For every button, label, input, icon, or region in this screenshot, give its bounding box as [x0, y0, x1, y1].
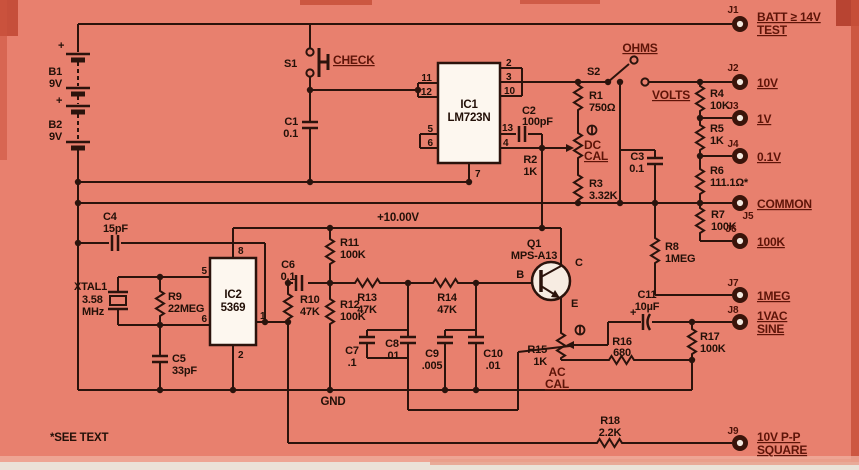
j3-label: 1V [757, 112, 771, 126]
circuit-schematic: B1 9V B2 9V + + S1 CHECK C1 0.1 IC1 LM72… [0, 0, 859, 470]
r9-ref-label: R9 [168, 291, 182, 303]
r17-ref-label: R17 [700, 331, 720, 343]
r15-wiper-arrow [566, 341, 574, 349]
r14-ref-label: R14 [437, 292, 458, 304]
r13-ref-label: R13 [357, 292, 377, 304]
r1-value-label: 750Ω [589, 102, 616, 114]
r5-ref-label: R5 [710, 123, 724, 135]
j8-label-line1: 1VAC [757, 309, 788, 323]
b1-plus-sign: + [58, 40, 64, 52]
s2-ohms-label: OHMS [622, 41, 657, 55]
c3-ref-label: C3 [630, 151, 644, 163]
wires [78, 24, 732, 443]
battery-symbols [66, 54, 90, 148]
s1-pushbutton-switch [306, 48, 328, 77]
c3-value-label: 0.1 [629, 163, 644, 175]
ac-cal-screw-icon [576, 326, 585, 335]
j1-ref-label: J1 [727, 5, 739, 16]
r18-ref-label: R18 [600, 415, 620, 427]
c10-value-label: .01 [486, 360, 501, 372]
r8-ref-label: R8 [665, 241, 679, 253]
j1-label-line2: TEST [757, 23, 788, 37]
ac-cal-line2-label: CAL [545, 377, 569, 391]
q1-ref-label: Q1 [527, 238, 541, 250]
r17-value-label: 100K [700, 343, 726, 355]
j5-label: COMMON [757, 197, 812, 211]
r9-value-label: 22MEG [168, 303, 204, 315]
s2-selector-switch [630, 56, 648, 85]
r10-ref-label: R10 [300, 294, 320, 306]
r15-value-label: 1K [533, 356, 547, 368]
c1-ref-label: C1 [284, 116, 298, 128]
j8-label-line2: SINE [757, 322, 784, 336]
c8-ref-label: C8 [385, 338, 399, 350]
j8-jack [732, 314, 748, 330]
ic2-pin8-label: 8 [238, 246, 244, 257]
r18-value-label: 2.2K [599, 427, 622, 439]
j3-ref-label: J3 [727, 101, 739, 112]
c2-value-label: 100pF [522, 116, 553, 128]
r4-ref-label: R4 [710, 88, 725, 100]
c6-ref-label: C6 [281, 259, 295, 271]
ic2-pin5-label: 5 [201, 266, 207, 277]
dc-cal-screw-icon [588, 126, 597, 135]
ic1-pin10-label: 10 [504, 86, 516, 97]
j3-jack [732, 110, 748, 126]
j2-ref-label: J2 [727, 63, 739, 74]
ic2-pin6-label: 6 [201, 314, 207, 325]
c8-value-label: .01 [385, 350, 400, 362]
schematic-page: B1 9V B2 9V + + S1 CHECK C1 0.1 IC1 LM72… [0, 0, 859, 470]
j1-jack [732, 16, 748, 32]
ic1-pin7-label: 7 [475, 169, 481, 180]
r10-value-label: 47K [300, 306, 320, 318]
r5-value-label: 1K [710, 135, 724, 147]
r3-ref-label: R3 [589, 178, 603, 190]
c4-value-label: 15pF [103, 223, 128, 235]
gnd-label: GND [321, 396, 346, 408]
ic2-ref-label: IC2 [224, 289, 241, 301]
crystal-symbol [108, 292, 128, 309]
ic2-part-label: 5369 [221, 302, 246, 314]
j1-label-line1: BATT ≥ 14V [757, 10, 821, 24]
j6-jack [732, 233, 748, 249]
ic2-pin2-label: 2 [238, 350, 244, 361]
r13-value-label: 47K [357, 304, 377, 316]
q1-collector-label: C [575, 257, 583, 269]
ic2-pin1-label: 1 [260, 311, 266, 322]
j5-ref-label: J5 [742, 211, 754, 222]
c9-ref-label: C9 [425, 348, 439, 360]
ic1-pin13-label: 13 [502, 123, 514, 134]
ic1-pin2-label: 2 [506, 58, 512, 69]
ic1-part-label: LM723N [448, 112, 491, 124]
j7-jack [732, 287, 748, 303]
q1-emitter-label: E [571, 298, 578, 310]
c5-ref-label: C5 [172, 353, 186, 365]
r15-ref-label: R15 [527, 344, 547, 356]
c11-ref-label: C11 [638, 289, 657, 301]
c11-value-label: 10µF [635, 301, 660, 313]
c5-value-label: 33pF [172, 365, 197, 377]
q1-part-label: MPS-A13 [511, 250, 557, 262]
q1-transistor-symbol [532, 262, 570, 300]
r2-value-label: 1K [523, 166, 537, 178]
r11-value-label: 100K [340, 249, 366, 261]
b2-plus-sign: + [56, 95, 62, 107]
c9-value-label: .005 [422, 360, 443, 372]
j2-jack [732, 74, 748, 90]
r8-value-label: 1MEG [665, 253, 695, 265]
j6-ref-label: J6 [725, 224, 737, 235]
r2-ref-label: R2 [523, 154, 537, 166]
j9-ref-label: J9 [727, 426, 739, 437]
j6-label: 100K [757, 235, 785, 249]
xtal1-value-line2: MHz [82, 306, 105, 318]
b2-ref-label: B2 [48, 119, 62, 131]
ic1-pin11-label: 11 [421, 73, 432, 84]
vref-rail-label: +10.00V [377, 212, 419, 224]
r14-value-label: 47K [437, 304, 457, 316]
ic1-pin4-label: 4 [503, 138, 509, 149]
ic1-pin6-label: 6 [427, 138, 433, 149]
c7-value-label: .1 [348, 357, 357, 369]
j5-jack [732, 195, 748, 211]
c7-ref-label: C7 [345, 345, 359, 357]
j9-jack [732, 435, 748, 451]
c4-ref-label: C4 [103, 211, 118, 223]
ic1-ref-label: IC1 [460, 99, 478, 111]
s2-volts-label: VOLTS [652, 88, 690, 102]
b1-ref-label: B1 [48, 66, 62, 78]
j4-ref-label: J4 [727, 139, 739, 150]
r11-ref-label: R11 [340, 237, 359, 249]
j8-ref-label: J8 [727, 305, 739, 316]
j4-jack [732, 148, 748, 164]
r7-ref-label: R7 [711, 209, 725, 221]
c10-ref-label: C10 [483, 348, 503, 360]
j7-label: 1MEG [757, 289, 790, 303]
r16-value-label: 680 [613, 347, 631, 359]
r6-value-label: 111.1Ω* [710, 177, 749, 189]
j9-label-line2: SQUARE [757, 443, 807, 457]
j7-ref-label: J7 [727, 278, 739, 289]
ic1-pin3-label: 3 [506, 72, 512, 83]
s2-ref-label: S2 [587, 66, 600, 78]
j9-label-line1: 10V P-P [757, 430, 800, 444]
j2-label: 10V [757, 76, 778, 90]
r6-ref-label: R6 [710, 165, 724, 177]
ic1-pin5-label: 5 [427, 124, 433, 135]
q1-base-label: B [516, 269, 524, 281]
r3-value-label: 3.32K [589, 190, 618, 202]
c1-value-label: 0.1 [283, 128, 298, 140]
see-text-note: *SEE TEXT [50, 432, 108, 444]
dc-cal-line2-label: CAL [584, 149, 608, 163]
xtal1-value-line1: 3.58 [82, 294, 103, 306]
c6-value-label: 0.1 [281, 271, 296, 283]
b1-value-label: 9V [49, 78, 63, 90]
s1-ref-label: S1 [284, 58, 297, 70]
c11-plus-sign: + [630, 307, 636, 319]
ic1-pin12-label: 12 [421, 87, 433, 98]
b2-value-label: 9V [49, 131, 63, 143]
s1-check-label: CHECK [333, 53, 375, 67]
xtal1-ref-label: XTAL1 [74, 281, 107, 293]
j4-label: 0.1V [757, 150, 781, 164]
r1-ref-label: R1 [589, 90, 603, 102]
